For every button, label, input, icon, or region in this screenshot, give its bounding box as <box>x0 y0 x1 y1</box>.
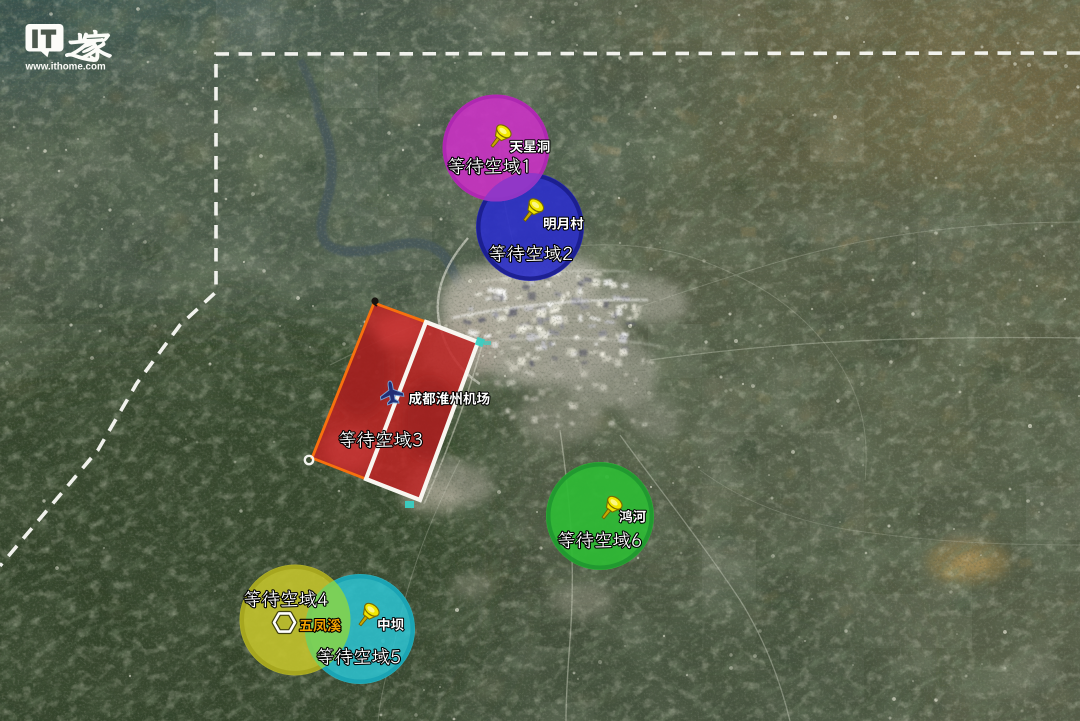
svg-text:www.ithome.com: www.ithome.com <box>25 62 106 73</box>
